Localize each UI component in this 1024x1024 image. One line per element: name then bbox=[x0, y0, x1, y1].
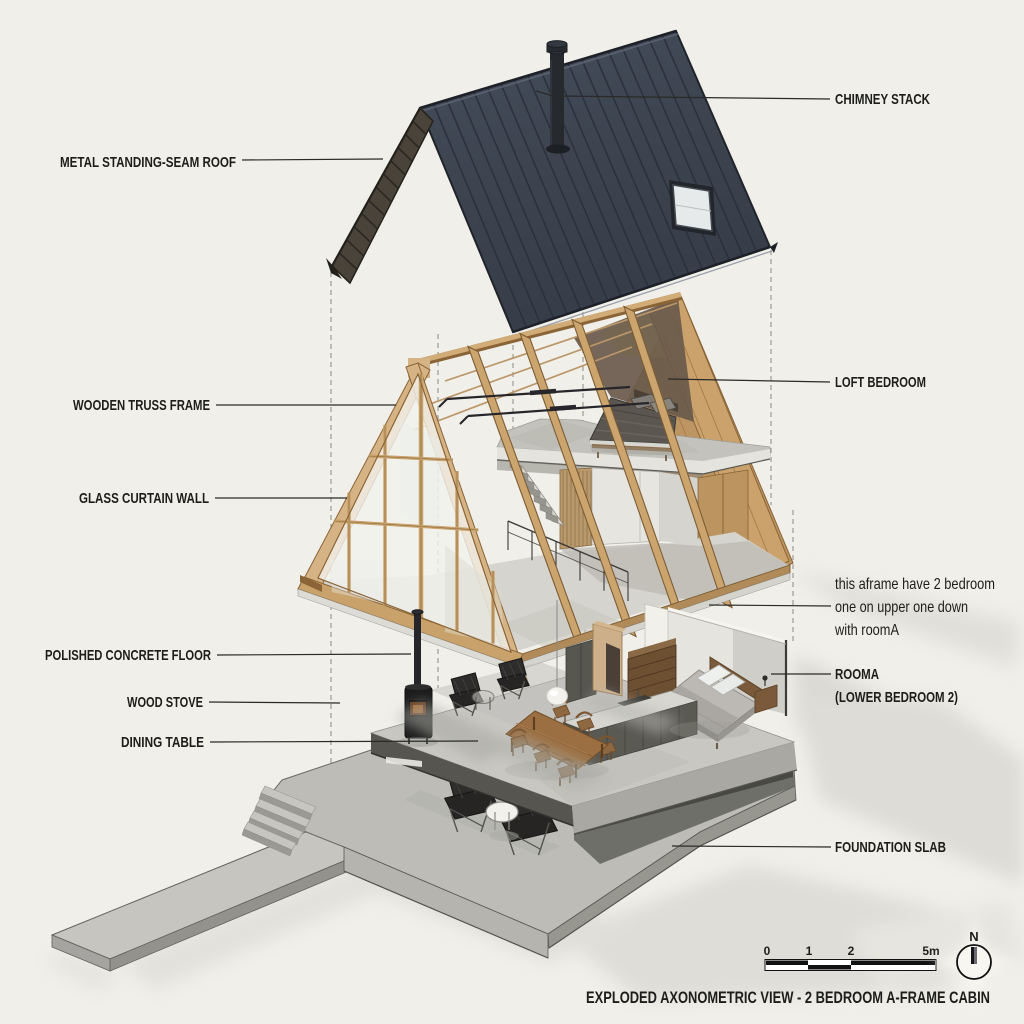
svg-text:CHIMNEY STACK: CHIMNEY STACK bbox=[835, 91, 930, 108]
svg-text:2: 2 bbox=[848, 944, 855, 958]
svg-text:this aframe have 2 bedroom: this aframe have 2 bedroom bbox=[835, 576, 995, 593]
svg-text:EXPLODED AXONOMETRIC VIEW - 2: EXPLODED AXONOMETRIC VIEW - 2 BEDROOM A-… bbox=[586, 989, 990, 1007]
svg-text:0: 0 bbox=[764, 944, 771, 958]
svg-text:DINING TABLE: DINING TABLE bbox=[121, 734, 204, 751]
svg-text:POLISHED CONCRETE FLOOR: POLISHED CONCRETE FLOOR bbox=[45, 647, 211, 664]
svg-text:LOFT BEDROOM: LOFT BEDROOM bbox=[835, 374, 926, 391]
svg-text:FOUNDATION SLAB: FOUNDATION SLAB bbox=[835, 839, 946, 856]
svg-text:one on upper one down: one on upper one down bbox=[835, 599, 968, 616]
svg-text:WOODEN TRUSS FRAME: WOODEN TRUSS FRAME bbox=[73, 397, 210, 414]
svg-text:with roomA: with roomA bbox=[834, 622, 899, 639]
svg-text:ROOMA: ROOMA bbox=[835, 666, 879, 683]
svg-text:METAL STANDING-SEAM ROOF: METAL STANDING-SEAM ROOF bbox=[60, 154, 236, 171]
svg-text:5m: 5m bbox=[922, 944, 939, 958]
svg-text:WOOD STOVE: WOOD STOVE bbox=[127, 694, 203, 711]
svg-text:N: N bbox=[969, 929, 978, 944]
svg-text:1: 1 bbox=[806, 944, 813, 958]
svg-text:(LOWER BEDROOM 2): (LOWER BEDROOM 2) bbox=[835, 689, 958, 706]
svg-text:GLASS CURTAIN WALL: GLASS CURTAIN WALL bbox=[79, 490, 209, 507]
